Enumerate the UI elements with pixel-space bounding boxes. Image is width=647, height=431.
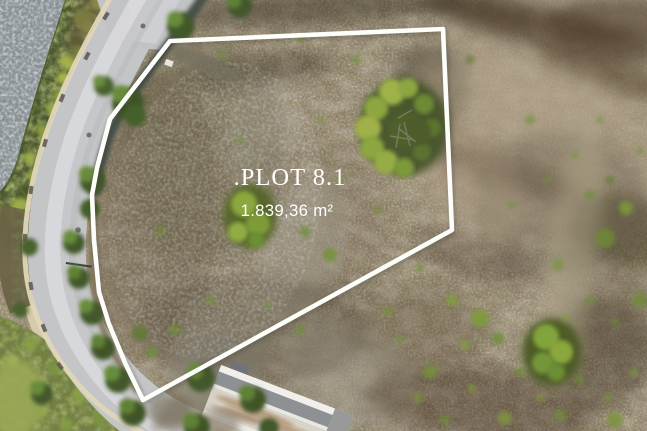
svg-text:.PLOT 8.1: .PLOT 8.1 (234, 164, 347, 191)
svg-text:1.839,36 m²: 1.839,36 m² (241, 201, 334, 220)
